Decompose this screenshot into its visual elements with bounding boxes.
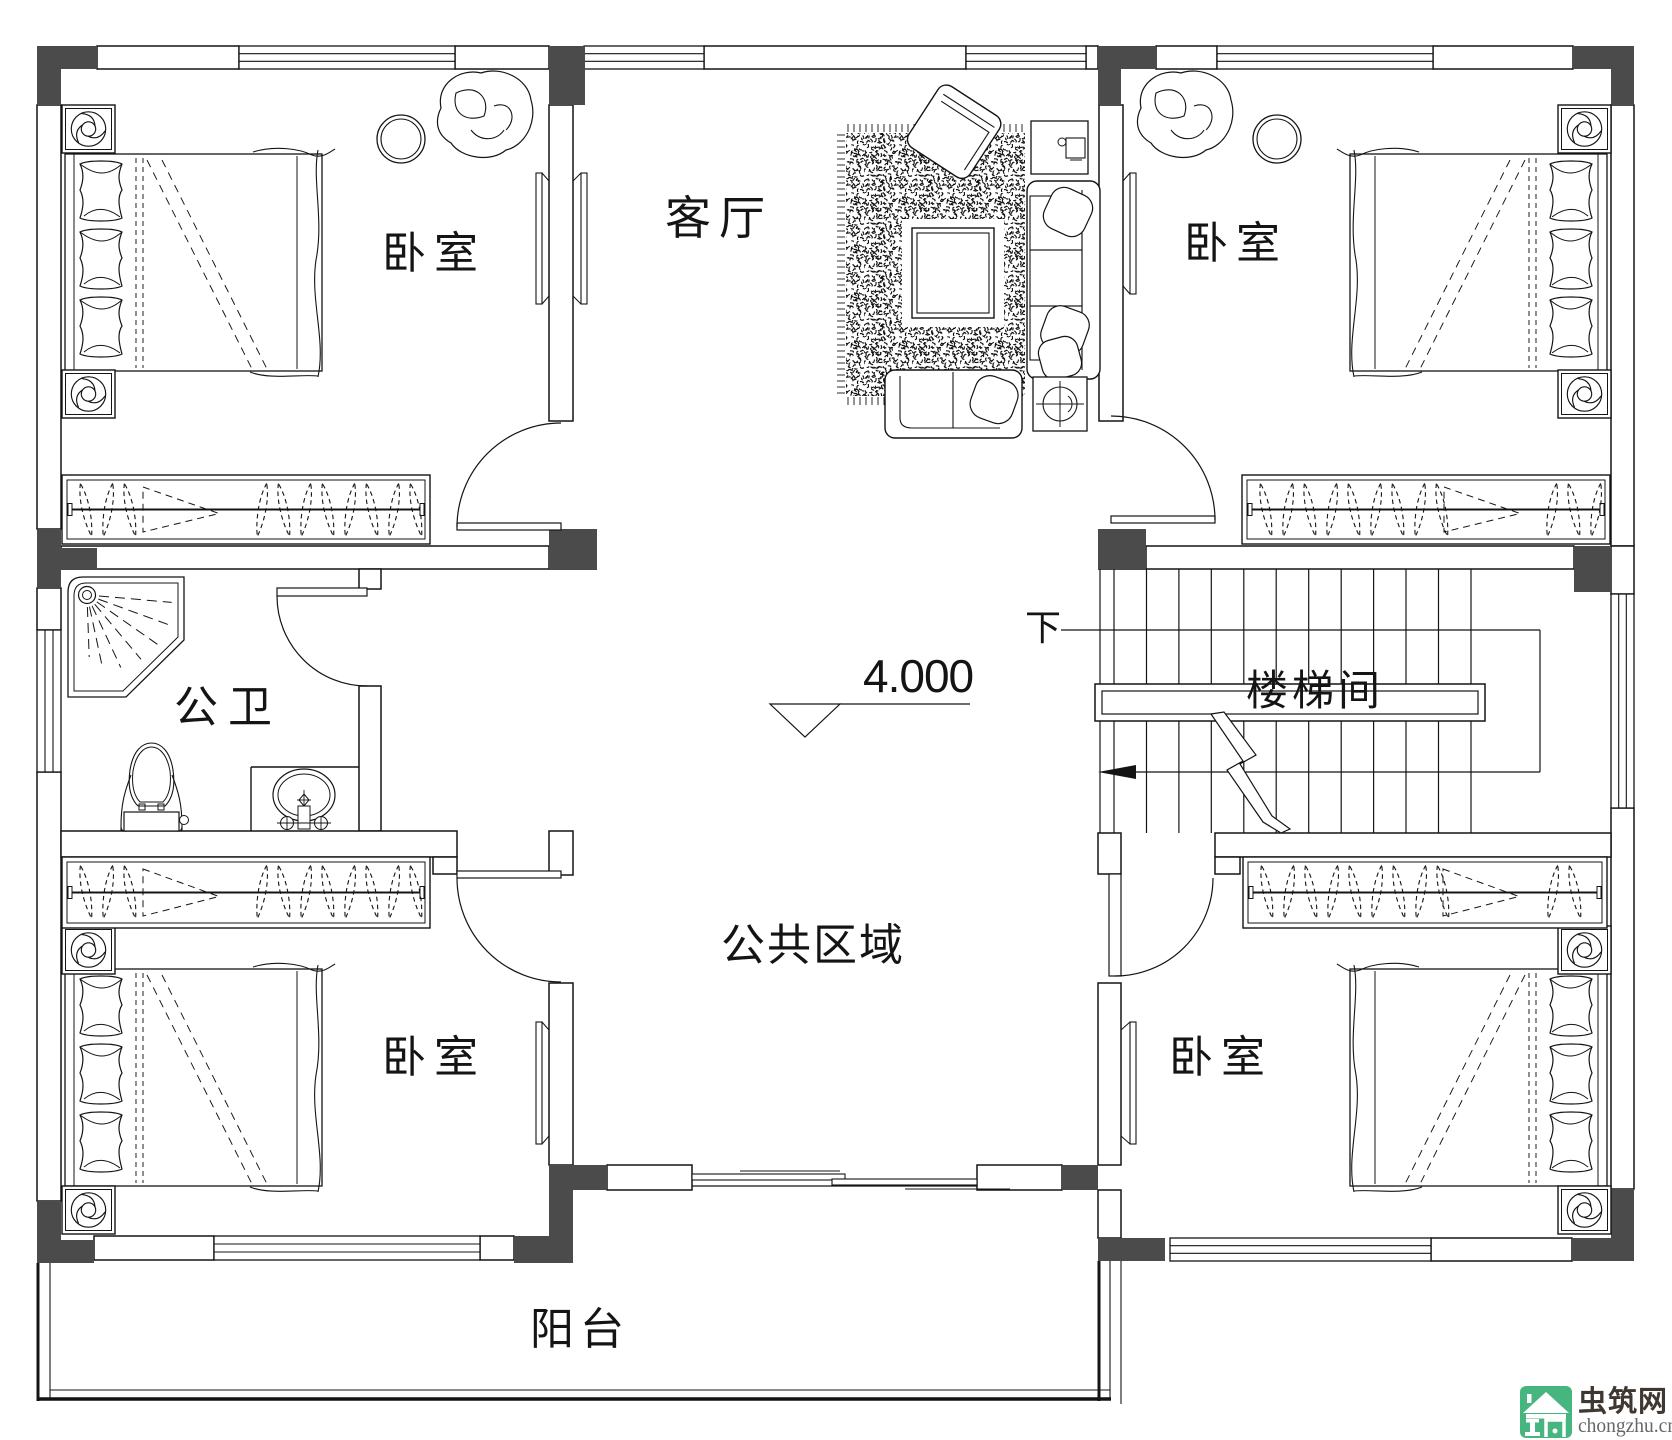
svg-text:楼梯间: 楼梯间 <box>1246 667 1384 714</box>
svg-text:卧室: 卧室 <box>1184 219 1288 268</box>
svg-text:下: 下 <box>1025 607 1061 648</box>
svg-text:客厅: 客厅 <box>665 192 773 244</box>
svg-text:卧室: 卧室 <box>382 229 486 278</box>
svg-text:chongzhu.cn: chongzhu.cn <box>1578 1416 1672 1437</box>
svg-text:虫筑网: 虫筑网 <box>1578 1385 1668 1418</box>
svg-text:公卫: 公卫 <box>174 683 282 732</box>
svg-text:4.000: 4.000 <box>863 650 973 702</box>
svg-text:公共区域: 公共区域 <box>721 921 905 970</box>
svg-text:阳台: 阳台 <box>530 1305 630 1354</box>
svg-text:卧室: 卧室 <box>382 1033 486 1082</box>
svg-text:卧室: 卧室 <box>1169 1033 1273 1082</box>
